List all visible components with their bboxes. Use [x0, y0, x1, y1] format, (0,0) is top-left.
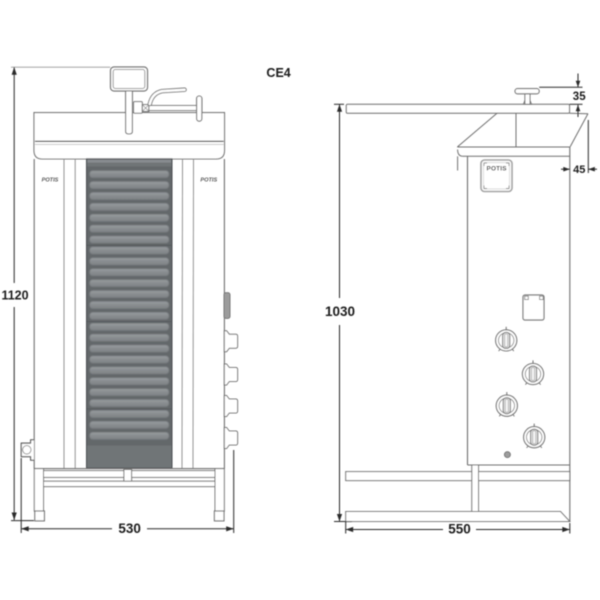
svg-text:45: 45	[573, 164, 585, 176]
svg-text:35: 35	[573, 91, 586, 103]
svg-text:POTIS: POTIS	[200, 178, 217, 184]
svg-text:530: 530	[118, 521, 141, 536]
svg-text:POTIS: POTIS	[487, 165, 508, 172]
svg-text:550: 550	[448, 521, 471, 536]
svg-text:1120: 1120	[1, 289, 28, 303]
svg-text:CE4: CE4	[266, 66, 290, 80]
svg-text:1030: 1030	[325, 304, 355, 319]
svg-text:POTIS: POTIS	[42, 178, 59, 184]
